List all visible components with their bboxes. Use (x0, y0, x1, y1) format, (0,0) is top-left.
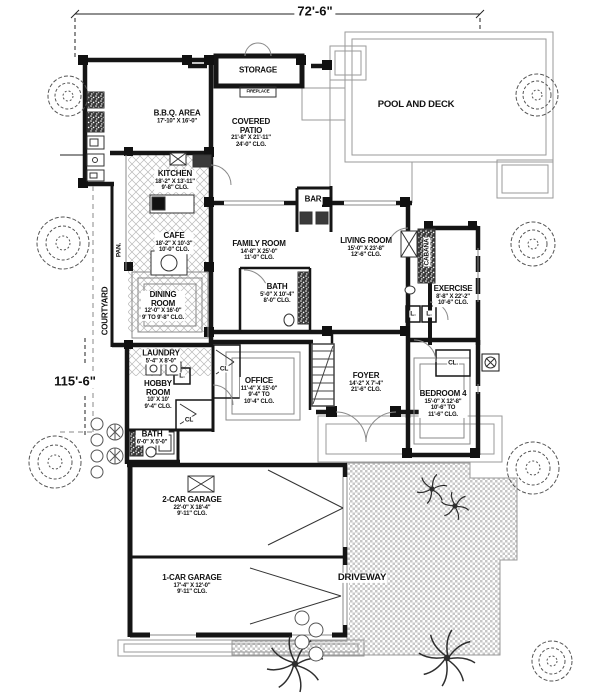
room-label-linen-c: L. (178, 372, 185, 379)
tree-icon (507, 442, 559, 494)
tree-icon (37, 217, 89, 269)
tree-icon (511, 222, 555, 266)
dimension-depth-label: 115'-6" (51, 374, 99, 389)
room-label-family-room: FAMILY ROOM14'-8" X 25'-0" 11'-0" CLG. (231, 240, 286, 262)
room-label-covered-patio: COVERED PATIO21'-8" X 21'-11" 24'-0" CLG… (230, 118, 272, 148)
pool-deck-outline (302, 32, 553, 203)
room-label-foyer: FOYER14'-2" X 7'-4" 21'-6" CLG. (348, 372, 384, 394)
room-label-exercise: EXERCISE8'-8" X 22'-2" 10'-6" CLG. (433, 285, 474, 307)
room-label-kitchen: KITCHEN18'-2" X 13'-11" 9'-8" CLG. (154, 170, 196, 192)
room-label-dining-room: DINING ROOM12'-0" X 16'-0" 9' TO 9'-8" C… (141, 291, 185, 321)
room-label-bedroom4: BEDROOM 415'-0" X 12'-8" 10'-6" TO 11'-6… (419, 390, 468, 418)
room-label-linen-b: L. (425, 310, 432, 317)
room-label-laundry: LAUNDRY5'-4" X 8'-0" (141, 349, 180, 364)
room-label-closet-office: CL (219, 365, 229, 372)
room-label-pantry: PAN. (115, 242, 122, 258)
room-label-living-room: LIVING ROOM15'-0" X 23'-8" 12'-6" CLG. (339, 237, 393, 259)
room-label-cabana: CABANA (423, 238, 430, 267)
room-label-bath-hobby: BATH6'-0" X 5'-0" (136, 430, 169, 445)
room-label-bar: BAR (304, 196, 323, 205)
room-label-driveway: DRIVEWAY (337, 573, 387, 583)
room-label-bbq: B.B.Q. AREA17'-10" X 16'-0" (153, 109, 202, 124)
driveway-surface (232, 463, 517, 655)
room-label-office: OFFICE11'-4" X 15'-0" 9'-4" TO 10'-4" CL… (240, 377, 279, 405)
room-label-fireplace: FIREPLACE (245, 90, 270, 95)
room-label-linen-a: L. (409, 310, 416, 317)
floorplan-linework (0, 0, 600, 700)
tree-icon (29, 436, 81, 488)
floor-plan: 72'-6" 115'-6" STORAGE FIREPLACE POOL AN… (0, 0, 600, 700)
room-label-closet-bedroom: CL. (447, 359, 459, 366)
room-label-courtyard: COURTYARD (102, 286, 111, 337)
room-label-bath-main: BATH5'-0" X 10'-4" 8'-0" CLG. (259, 283, 295, 305)
dimension-width-label: 72'-6" (294, 4, 335, 19)
stairs (312, 344, 334, 406)
tree-icon (48, 76, 88, 116)
room-label-storage: STORAGE (238, 67, 278, 76)
tree-icon (532, 641, 572, 681)
tree-icon (516, 74, 558, 116)
room-label-pool-deck: POOL AND DECK (377, 100, 456, 110)
room-label-closet-hobby: CL (184, 416, 194, 423)
room-label-garage-2: 2-CAR GARAGE22'-0" X 18'-4" 9'-11" CLG. (161, 496, 222, 518)
room-label-garage-1: 1-CAR GARAGE17'-4" X 12'-0" 9'-11" CLG. (161, 574, 222, 596)
room-label-cafe: CAFE18'-2" X 10'-3" 10'-0" CLG. (155, 232, 194, 254)
room-label-hobby-room: HOBBY ROOM10' X 10' 9'-4" CLG. (143, 380, 173, 410)
